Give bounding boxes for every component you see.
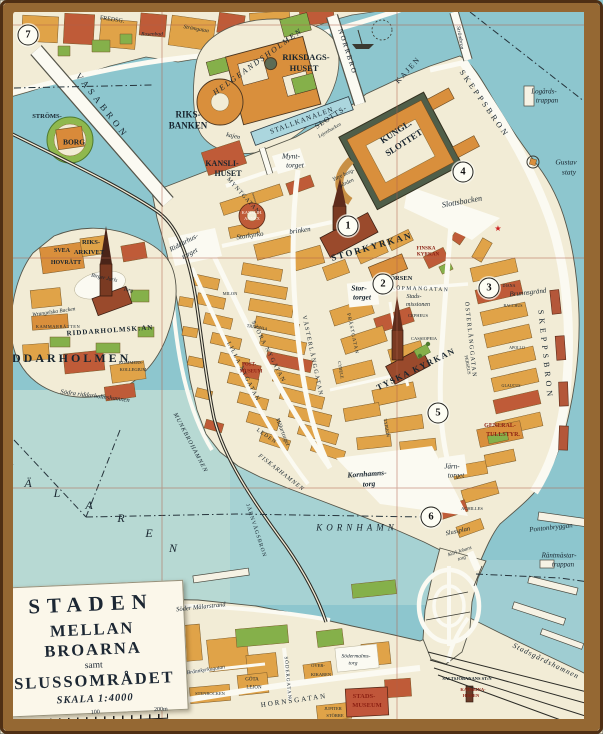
map-marker-4[interactable]: 4 — [453, 162, 474, 183]
map-marker-5[interactable]: 5 — [428, 403, 449, 424]
map-marker-1[interactable]: 1 — [338, 216, 359, 237]
map-marker-7[interactable]: 7 — [18, 25, 39, 46]
map-marker-2[interactable]: 2 — [373, 274, 394, 295]
map-markers-layer: 1234567 — [0, 0, 603, 734]
map-marker-3[interactable]: 3 — [479, 278, 500, 299]
map-stage: FREDSG.RosenbadStrömgatanVASABRONSTRÖMS-… — [0, 0, 603, 734]
map-marker-6[interactable]: 6 — [421, 507, 442, 528]
